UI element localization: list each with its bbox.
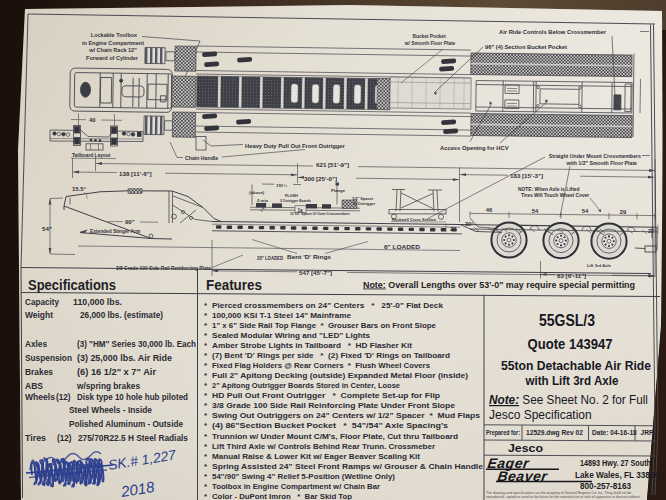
svg-text:30°: 30° [465,221,473,227]
svg-text:Extended Stinger Arm: Extended Stinger Arm [90,229,140,234]
svg-text:with Lift 3rd Axle: with Lift 3rd Axle [525,374,619,388]
svg-text:621 [51'-9"]: 621 [51'-9"] [316,161,349,168]
svg-text:Note: Overall Lengths over 53': Note: Overall Lengths over 53'-0" may re… [363,280,635,290]
svg-text:2 min: 2 min [257,198,269,203]
svg-text:96" (4) Section Bucket Pocket: 96" (4) Section Bucket Pocket [485,44,567,50]
svg-text:Axles: Axles [25,340,47,349]
svg-text:2 Outrigger Boards: 2 Outrigger Boards [280,199,311,203]
svg-text:15.5°: 15.5° [72,186,87,192]
svg-text:(12): (12) [57,434,72,443]
svg-text:Weight: Weight [25,311,53,320]
svg-text:Pierced crossmembers on 24" Ce: Pierced crossmembers on 24" Centers * 25… [212,301,444,310]
svg-text:Straight Under Mount Crossmemb: Straight Under Mount Crossmembers [549,153,641,159]
svg-text:HD Pull Out Front Outrigger: HD Pull Out Front Outrigger * Complete S… [212,391,440,400]
svg-text:54": 54" [42,225,52,232]
svg-text:54: 54 [532,208,539,214]
svg-text:ABS: ABS [25,382,44,391]
svg-text:(6) 16 1/2" x 7" Air: (6) 16 1/2" x 7" Air [77,368,157,377]
svg-text:26,000 lbs. (estimate): 26,000 lbs. (estimate) [80,311,163,320]
svg-text:Wheels: Wheels [25,393,55,402]
svg-text:Lake Wales, FL 33859: Lake Wales, FL 33859 [575,469,659,480]
svg-text:Polished Aluminum - Outside: Polished Aluminum - Outside [69,420,183,429]
svg-text:Amber Strobe Lights in Tailboa: Amber Strobe Lights in Tailboard * HD Fl… [212,341,412,350]
svg-text:Lift 3rd Axle: Lift 3rd Axle [587,263,612,268]
svg-text:Note: See Sheet No. 2 for Full: Note: See Sheet No. 2 for Full [489,393,648,407]
svg-text:3/8 Grade 100 Side Rail Reinfo: 3/8 Grade 100 Side Rail Reinforcing Plat… [212,401,456,410]
svg-text:Disk type 10 hole hub piloted: Disk type 10 hole hub piloted [77,393,188,402]
svg-text:JRP: JRP [641,429,654,436]
svg-text:Date: 04-16-18: Date: 04-16-18 [592,429,637,436]
svg-text:110,000 lbs.: 110,000 lbs. [73,298,122,307]
svg-text:Bucket Pocket: Bucket Pocket [412,34,445,39]
svg-text:Features: Features [206,278,262,293]
svg-text:Toolbox in Engine Compartment: Toolbox in Engine Compartment w/ Chain B… [212,482,380,491]
svg-text:22: 22 [450,226,456,232]
svg-text:Steel Wheels - Inside: Steel Wheels - Inside [69,406,152,415]
svg-text:Swing Out Outriggers on 24" Ce: Swing Out Outriggers on 24" Centers w/ 1… [212,411,481,420]
svg-text:40: 40 [89,117,95,123]
svg-text:191¾: 191¾ [276,183,287,188]
svg-text:In Outrigger: In Outrigger [353,201,376,206]
svg-text:22: 22 [648,228,654,234]
svg-text:Lockable Toolbox: Lockable Toolbox [91,32,138,38]
svg-text:29: 29 [620,209,627,215]
svg-text:(12): (12) [56,393,71,402]
svg-text:(4) 86"Section Bucket Pocket: (4) 86"Section Bucket Pocket * 54"/54" A… [212,421,449,430]
svg-text:Heavy Duty Pull Out Front Outr: Heavy Duty Pull Out Front Outrigger [245,143,346,149]
svg-text:Forward of Cylinder: Forward of Cylinder [86,55,139,61]
svg-text:FLUSH: FLUSH [285,194,298,198]
svg-text:(3) 25,000 lbs. Air Ride: (3) 25,000 lbs. Air Ride [77,354,172,363]
svg-text:w/spring brakes: w/spring brakes [76,382,140,391]
svg-text:Suspension: Suspension [25,354,72,363]
svg-text:Spring Assisted 24" Steel Fron: Spring Assisted 24" Steel Front Ramps w/… [212,462,484,471]
svg-text:275/70R22.5 H Steel Radials: 275/70R22.5 H Steel Radials [78,434,188,443]
svg-text:Tailboard Layout: Tailboard Layout [72,153,111,158]
svg-text:2" Apitong Outrigger Boards St: 2" Apitong Outrigger Boards Stored in Ce… [212,381,401,390]
svg-text:55ton Detachable Air Ride: 55ton Detachable Air Ride [501,359,651,373]
svg-text:Prepared for:: Prepared for: [486,429,520,437]
svg-text:Quote 143947: Quote 143947 [528,336,613,352]
svg-text:Flange: Flange [331,188,346,193]
svg-text:(3) "HM" Series 30,000 lb. Eac: (3) "HM" Series 30,000 lb. Each [77,340,196,349]
svg-text:Access Opening for HCV: Access Opening for HCV [440,145,509,151]
svg-text:90": 90" [125,219,135,225]
svg-text:Manual Raise & Lower Kit w/ Ea: Manual Raise & Lower Kit w/ Eager Beaver… [212,452,420,461]
svg-text:Sealed Modular Wiring and "LED: Sealed Modular Wiring and "LED" Lights [212,331,371,340]
svg-text:Jesco Specification: Jesco Specification [489,408,592,422]
svg-text:(7) Bent 'D' Rings per side: (7) Bent 'D' Rings per side * (2) Fixed … [212,351,450,360]
svg-text:138 [11'-6"]: 138 [11'-6"] [119,170,152,177]
svg-text:6" LOADED: 6" LOADED [384,244,420,250]
svg-text:NOTE: When Axle is Lifted: NOTE: When Axle is Lifted [518,187,580,192]
svg-text:Full 2" Apitong Decking (outsi: Full 2" Apitong Decking (outside) Expand… [212,371,468,380]
svg-text:Air Ride Controls Below Crossm: Air Ride Controls Below Crossmember [499,29,607,35]
svg-text:54"/90" Swing 4" Relief 5-Posi: 54"/90" Swing 4" Relief 5-Position (Wetl… [212,472,395,481]
svg-text:Fixed Flag Holders @ Rear Corn: Fixed Flag Holders @ Rear Corners * Flus… [212,361,431,370]
svg-text:300 [25'-0"]: 300 [25'-0"] [304,175,337,182]
svg-text:10 1/2" Spacer Of Outer Crossm: 10 1/2" Spacer Of Outer Crossmembers [290,212,350,216]
svg-text:Brakes: Brakes [25,368,53,377]
svg-text:Trunnion w/ Under Mount C/M's,: Trunnion w/ Under Mount C/M's, Floor Pla… [212,432,458,441]
svg-text:w/ Smooth Floor Plate: w/ Smooth Floor Plate [404,41,456,46]
svg-text:12529.dwg Rev 02: 12529.dwg Rev 02 [526,429,583,437]
svg-text:Chain Handle: Chain Handle [185,155,218,161]
svg-text:(above): (above) [249,190,265,195]
svg-text:in Engine Compartment: in Engine Compartment [82,40,144,46]
svg-text:Capacity: Capacity [25,298,59,307]
svg-text:with 1/2" Smooth Floor Plate: with 1/2" Smooth Floor Plate [566,160,638,166]
svg-text:Lift Third Axle w/ Controls Be: Lift Third Axle w/ Controls Behind Rear … [212,442,435,451]
svg-text:Specifications: Specifications [28,278,116,293]
svg-text:1" x 6" Side Rail Top Flange: 1" x 6" Side Rail Top Flange * Grouser B… [212,321,437,330]
svg-text:20" LOADED: 20" LOADED [257,255,283,261]
svg-text:55GSL/3: 55GSL/3 [539,311,595,329]
svg-text:183 [15'-3"]: 183 [15'-3"] [510,172,543,179]
svg-text:100,000 KSI T-1 Steel 14" Main: 100,000 KSI T-1 Steel 14" Mainframe [212,311,352,320]
svg-text:Tires: Tires [25,434,46,443]
svg-text:46: 46 [486,207,493,213]
svg-text:Jesco: Jesco [508,442,543,454]
svg-text:Bent 'D' Rings: Bent 'D' Rings [287,255,331,260]
svg-text:Rockwell Cross Section: Rockwell Cross Section [392,217,437,222]
svg-text:54: 54 [582,208,589,214]
svg-text:reproduced, copied or used as: reproduced, copied or used as the basis … [486,495,640,499]
svg-text:Tires Will Touch Wheel Cover: Tires Will Touch Wheel Cover [521,193,589,198]
svg-text:800-257-8163: 800-257-8163 [580,480,631,491]
svg-text:w/ Chain Rack 12": w/ Chain Rack 12" [88,47,137,53]
svg-text:Color - DuPont Imron * Bar: Color - DuPont Imron * Bar Skid Top [212,492,352,500]
svg-text:14893 Hwy. 27 South: 14893 Hwy. 27 South [580,457,651,468]
